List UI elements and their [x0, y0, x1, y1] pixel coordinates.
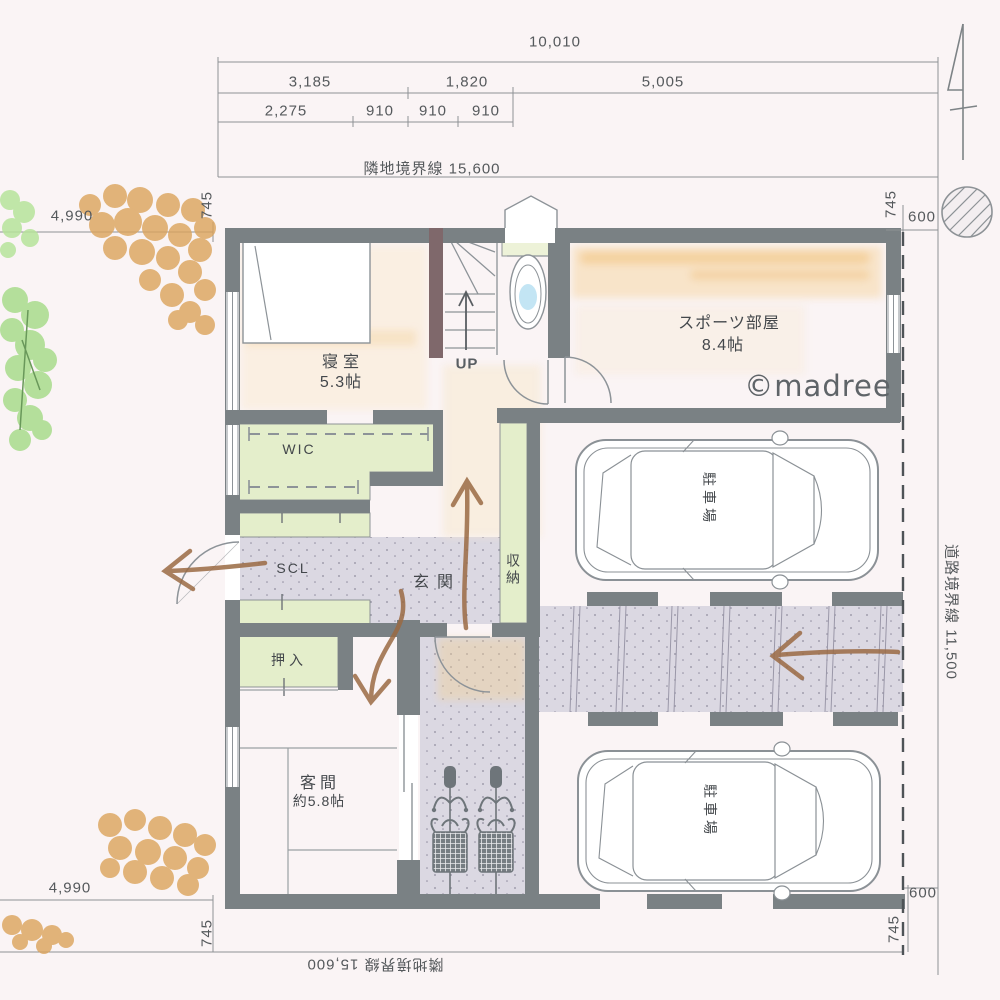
guest-room-label: 客間 — [300, 769, 340, 793]
dim-left-setback-bottom: 745 — [199, 919, 216, 947]
scl-shelf-bottom — [239, 600, 370, 625]
parked-car-1 — [576, 431, 878, 589]
guest-window — [226, 727, 239, 787]
entrance-label: 玄関 — [413, 568, 461, 592]
stairs-up-arrow — [459, 292, 473, 350]
wic-window — [226, 425, 239, 495]
sports-room-size: 8.4帖 — [702, 331, 744, 355]
dim-910-b: 910 — [419, 103, 447, 120]
wic-area — [239, 424, 437, 500]
bed — [243, 240, 370, 343]
oshiire-label: 押入 — [271, 650, 307, 670]
foliage-orange-bottom-edge-icon — [2, 915, 74, 954]
guest-sliding-door — [399, 715, 418, 860]
dim-910-c: 910 — [472, 103, 500, 120]
dim-1820: 1,820 — [446, 74, 489, 91]
dim-left-width-bottom: 4,990 — [49, 880, 92, 897]
parking-label-1: 駐車場 — [699, 472, 719, 526]
stair-bay-window — [505, 196, 557, 228]
dim-right-edge-bottom: 600 — [909, 885, 937, 902]
dim-left-width-top: 4,990 — [51, 208, 94, 225]
dim-right-edge-top: 600 — [908, 209, 936, 226]
stairs — [445, 232, 497, 355]
scl-label: SCL — [276, 560, 309, 576]
sports-room-window — [887, 295, 900, 353]
road-boundary-label: 道路境界線 11,500 — [942, 544, 963, 680]
bottom-boundary-label: 隣地境界線 15,600 — [306, 955, 443, 976]
dim-total-width: 10,010 — [529, 34, 581, 51]
stairs-up-label: UP — [456, 356, 479, 373]
watermark: ©madree — [744, 369, 891, 403]
storage-area — [500, 423, 527, 623]
dim-5005: 5,005 — [642, 74, 685, 91]
dim-right-setback-top: 745 — [883, 190, 900, 218]
floor-plan-drawing — [0, 0, 1000, 1000]
toilet — [507, 255, 549, 329]
bedroom-size: 5.3帖 — [320, 368, 362, 392]
toilet-water — [519, 284, 537, 310]
dim-right-setback-bottom: 745 — [886, 915, 903, 943]
wic-label: WIC — [282, 441, 315, 457]
dim-2275: 2,275 — [265, 103, 308, 120]
floor-plan-page: 10,010 3,185 1,820 5,005 2,275 910 910 9… — [0, 0, 1000, 1000]
dim-left-setback-top: 745 — [199, 191, 216, 219]
storage-label: 収納 — [503, 553, 523, 587]
foliage-green-tree-icon — [0, 287, 57, 451]
guest-room-size: 約5.8帖 — [293, 791, 345, 811]
parked-car-2 — [578, 742, 880, 900]
stair-bay-opening — [505, 228, 555, 243]
top-boundary-label: 隣地境界線 15,600 — [363, 158, 500, 179]
sports-room-label: スポーツ部屋 — [678, 309, 780, 333]
dim-910-a: 910 — [366, 103, 394, 120]
foliage-orange-top-left-icon — [79, 184, 216, 335]
north-arrow-icon — [948, 24, 977, 160]
scl-shelf-top — [239, 513, 370, 537]
parking-label-2: 駐車場 — [700, 784, 720, 838]
foliage-green-top-left-icon — [0, 190, 39, 258]
bedroom-window — [226, 292, 239, 410]
foliage-orange-bottom-left-icon — [98, 809, 216, 896]
hatched-circle-tree-icon — [936, 180, 1000, 250]
walkway-floor — [538, 606, 903, 712]
dim-3185: 3,185 — [289, 74, 332, 91]
stair-wall — [429, 228, 443, 358]
